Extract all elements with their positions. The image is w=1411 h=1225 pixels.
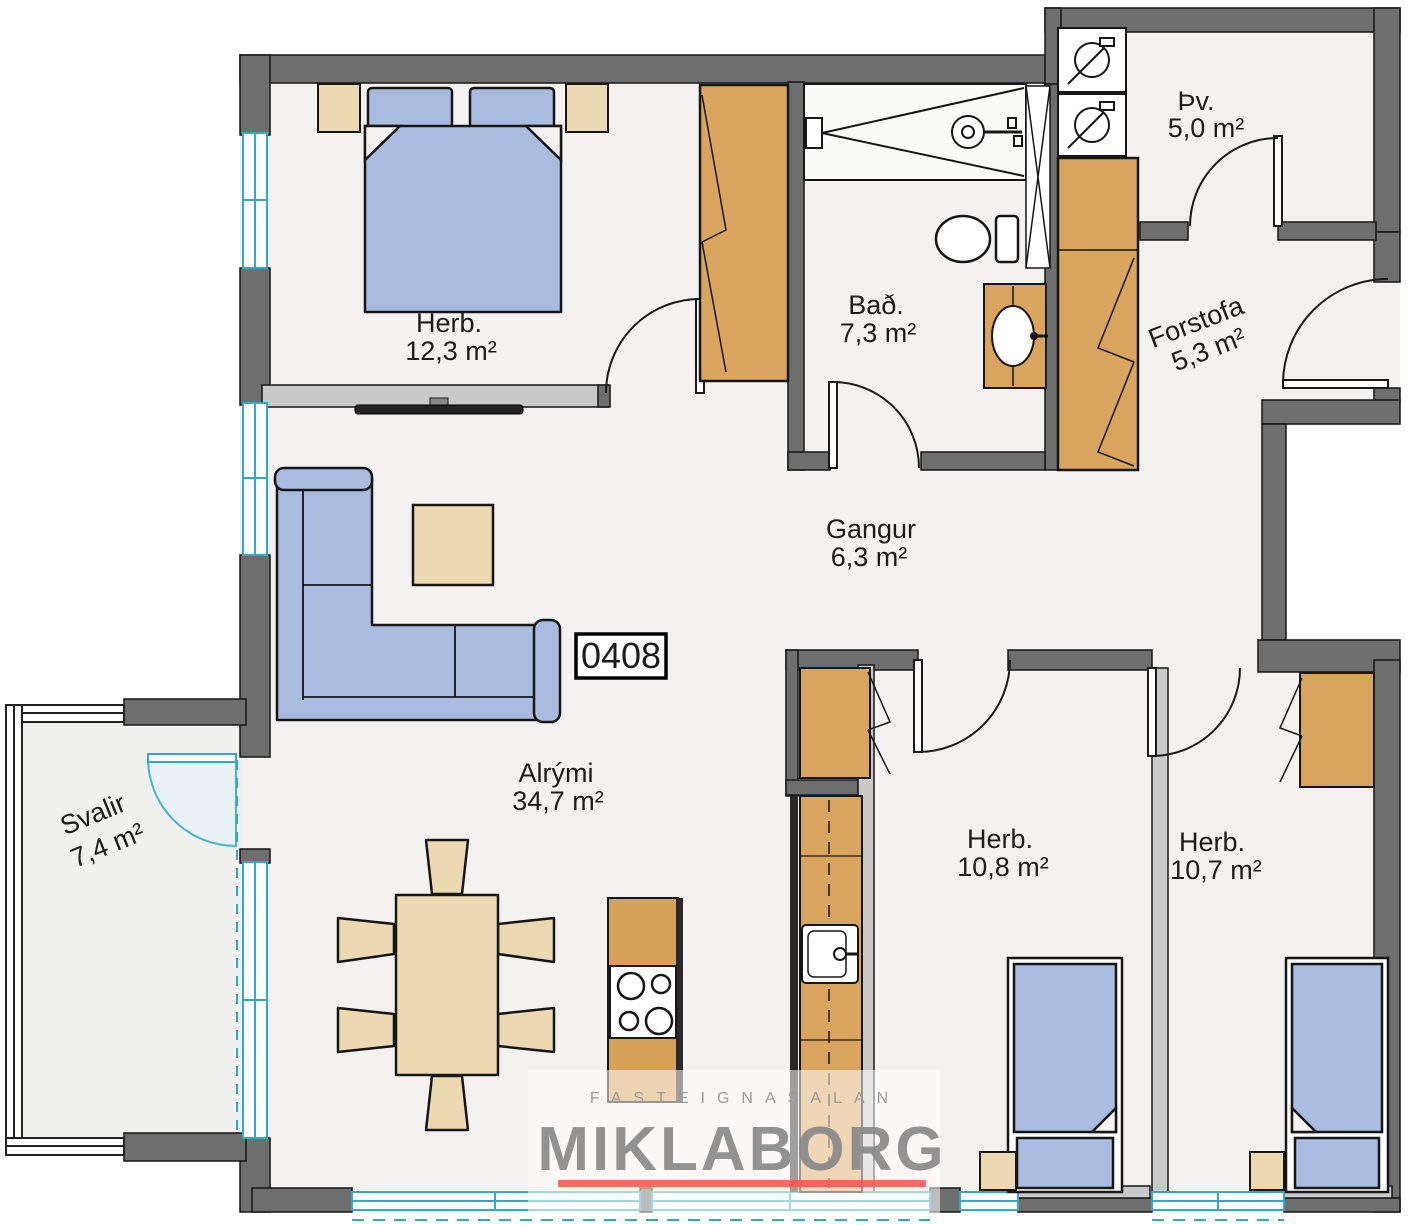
kitchen-sink-icon (802, 925, 858, 983)
dining-chair (498, 1008, 554, 1052)
nightstand (318, 84, 360, 132)
bathroom-vanity (984, 284, 1048, 388)
nightstand (566, 84, 608, 132)
watermark-underline (558, 1180, 926, 1187)
room-name: Herb. (1179, 827, 1245, 857)
unit-number: 0408 (581, 635, 661, 676)
room-name: Bað. (848, 290, 904, 320)
window-icon (1152, 1192, 1284, 1210)
watermark-tagline: FASTEIGNASALAN (590, 1090, 900, 1107)
single-bed-2 (1286, 958, 1388, 1192)
room-name: Herb. (967, 824, 1033, 854)
bathroom-sink-icon (992, 306, 1034, 366)
unit-number-box: 0408 (576, 634, 666, 678)
toilet-icon (936, 216, 1018, 262)
floor-plan: 0408 (0, 0, 1411, 1225)
room-area: 10,8 m² (957, 852, 1049, 882)
room-name: Alrými (519, 758, 594, 788)
label-hallway: Gangur 6,3 m² (826, 514, 916, 572)
room-area: 7,3 m² (840, 318, 917, 348)
master-wardrobe (700, 85, 788, 381)
single-bed-1 (1008, 958, 1122, 1192)
room-name: Gangur (826, 514, 916, 544)
dining-chair (338, 918, 394, 962)
window-icon (960, 1192, 1018, 1210)
dining-table (396, 895, 498, 1075)
entry-closet (1058, 158, 1138, 470)
tall-cabinet (1026, 86, 1050, 268)
room-area: 34,7 m² (512, 786, 604, 816)
washing-machine-icon (1058, 28, 1126, 92)
room-name: Þv. (1177, 86, 1214, 116)
room-area: 10,7 m² (1170, 855, 1262, 885)
room-area: 12,3 m² (405, 336, 497, 366)
dining-chair (338, 1008, 394, 1052)
room-name: Herb. (416, 308, 482, 338)
nightstand (980, 1152, 1016, 1190)
coffee-table (413, 505, 493, 585)
pillow (470, 88, 554, 128)
pillow (1295, 1138, 1379, 1188)
window-icon (243, 403, 267, 555)
room-area: 5,0 m² (1168, 113, 1245, 143)
cooktop-icon (610, 966, 676, 1038)
partition-end-cap (598, 385, 610, 407)
watermark-brand: MIKLABORG (537, 1115, 946, 1184)
room-area: 6,3 m² (831, 542, 908, 572)
pillow (1017, 1138, 1113, 1188)
watermark: FASTEIGNASALAN MIKLABORG (528, 1070, 947, 1218)
dining-chair (498, 918, 554, 962)
floor-plan-drawing: 0408 (0, 0, 1411, 1225)
nightstand (1250, 1152, 1284, 1190)
window-icon (243, 133, 267, 268)
washing-machine-icon (1058, 94, 1126, 156)
pillow (368, 88, 452, 128)
dining-chair (426, 840, 468, 894)
dining-chair (426, 1076, 468, 1130)
label-living: Alrými 34,7 m² (512, 758, 604, 816)
